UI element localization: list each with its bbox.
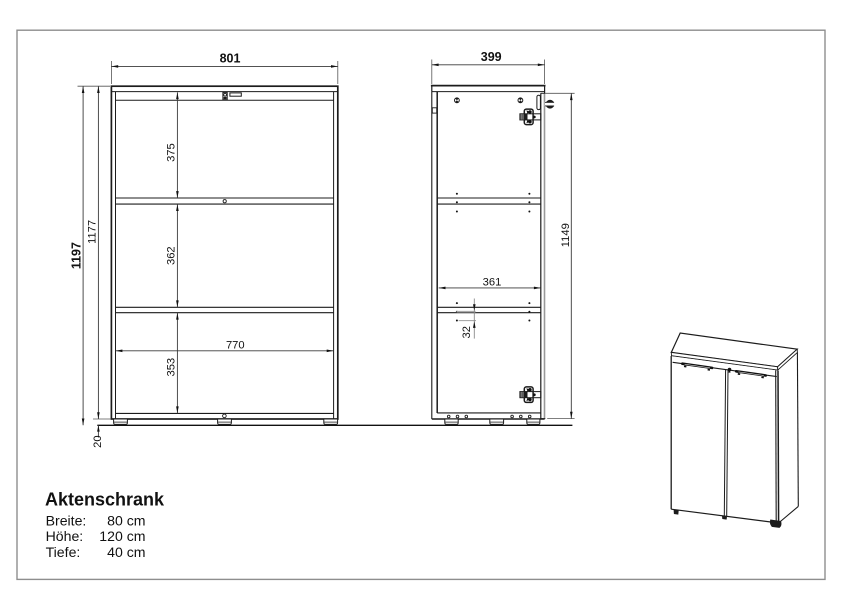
svg-text:1197: 1197 bbox=[69, 242, 83, 269]
svg-text:375: 375 bbox=[166, 143, 178, 162]
svg-text:361: 361 bbox=[483, 277, 502, 289]
svg-text:32: 32 bbox=[461, 326, 473, 338]
svg-text:Breite:: Breite: bbox=[46, 512, 87, 528]
svg-text:399: 399 bbox=[481, 50, 502, 64]
svg-text:362: 362 bbox=[166, 246, 178, 265]
svg-text:770: 770 bbox=[226, 339, 245, 351]
svg-text:cm: cm bbox=[127, 528, 146, 544]
svg-text:120: 120 bbox=[99, 528, 123, 544]
svg-text:1177: 1177 bbox=[87, 220, 99, 244]
svg-text:801: 801 bbox=[220, 51, 241, 65]
svg-text:1149: 1149 bbox=[560, 223, 572, 247]
svg-text:40: 40 bbox=[107, 544, 123, 560]
svg-text:Tiefe:: Tiefe: bbox=[46, 544, 81, 560]
svg-text:353: 353 bbox=[166, 358, 178, 377]
svg-text:Aktenschrank: Aktenschrank bbox=[45, 489, 165, 509]
svg-text:cm: cm bbox=[127, 544, 146, 560]
svg-text:Höhe:: Höhe: bbox=[46, 528, 84, 544]
svg-text:cm: cm bbox=[127, 512, 146, 528]
svg-text:20: 20 bbox=[92, 435, 104, 447]
svg-text:80: 80 bbox=[107, 512, 123, 528]
